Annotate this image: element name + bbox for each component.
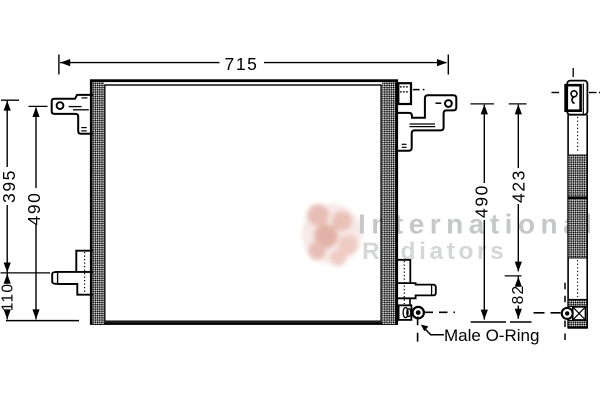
- svg-text:423: 423: [509, 169, 529, 203]
- svg-text:490: 490: [472, 184, 492, 218]
- svg-text:715: 715: [225, 54, 259, 74]
- svg-text:490: 490: [24, 192, 44, 226]
- svg-text:82: 82: [510, 285, 527, 305]
- svg-text:Male O-Ring: Male O-Ring: [444, 326, 539, 345]
- svg-text:395: 395: [0, 169, 19, 203]
- svg-text:110: 110: [0, 283, 16, 311]
